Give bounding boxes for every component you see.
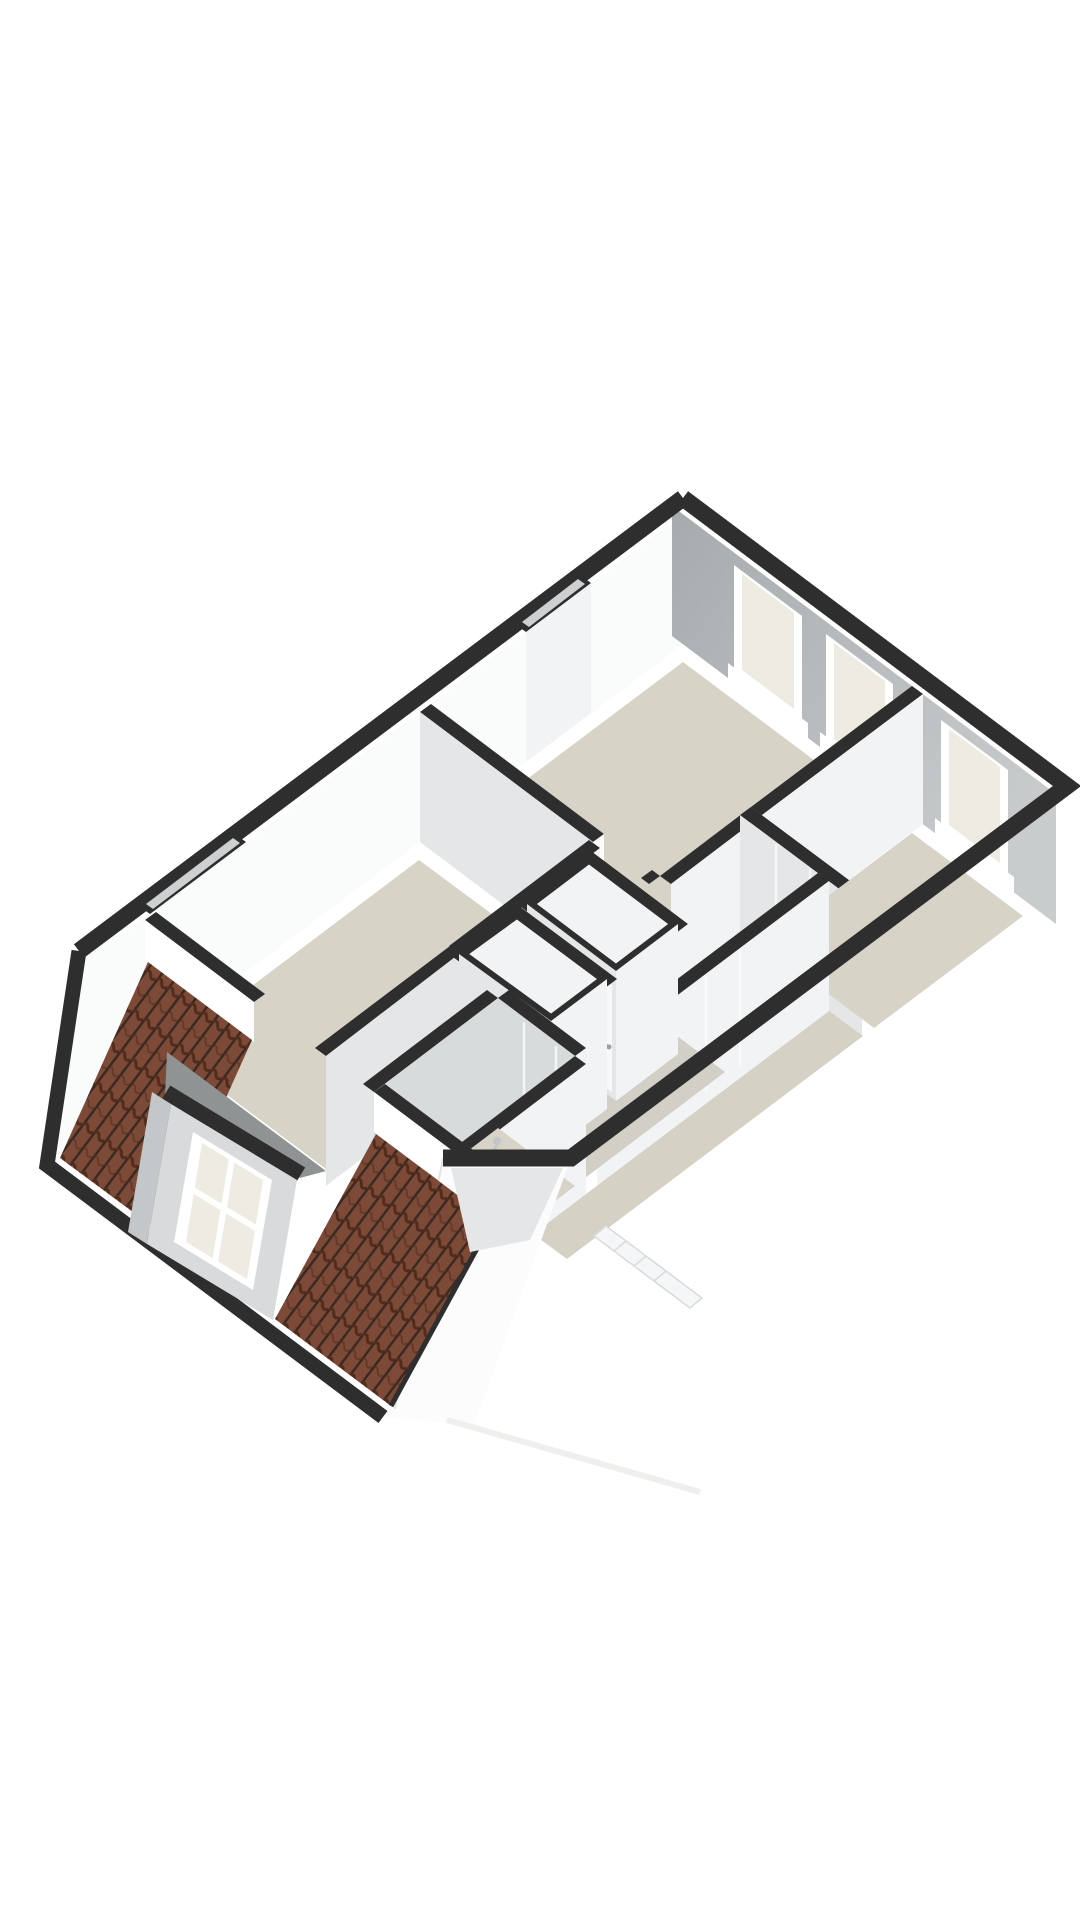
floorplan-3d-canvas bbox=[0, 0, 1080, 1920]
faucet bbox=[493, 1137, 501, 1145]
door-handle-knob bbox=[607, 1045, 612, 1050]
floorplan-3d bbox=[0, 0, 1080, 1920]
